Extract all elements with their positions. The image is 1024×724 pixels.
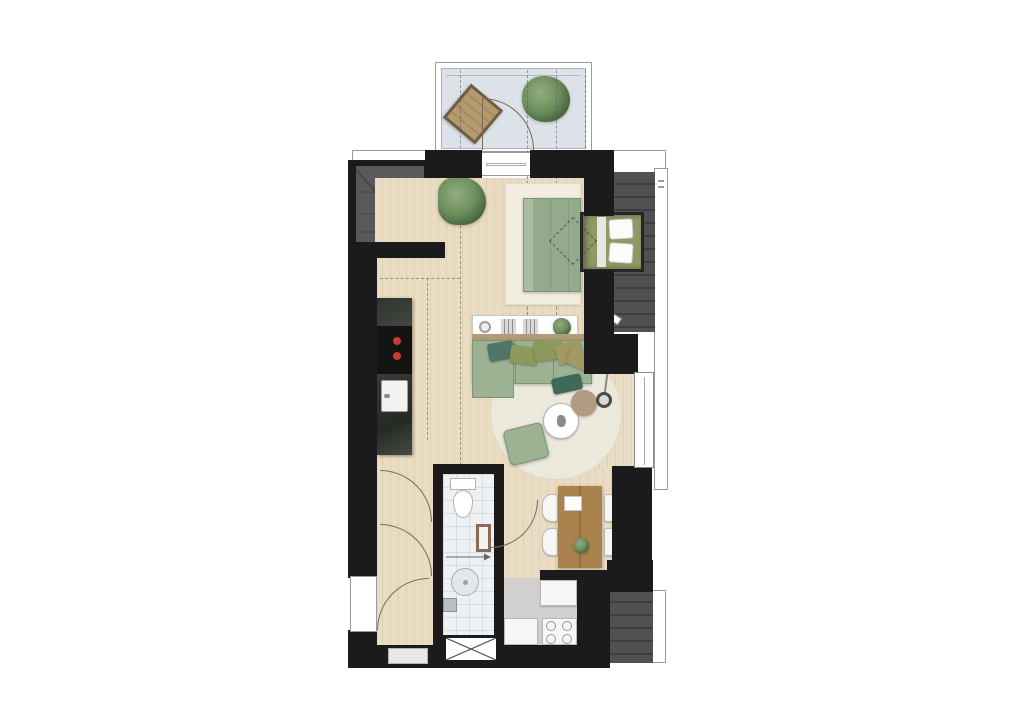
table-tray: [564, 496, 582, 511]
decor-books: [523, 319, 538, 335]
bottom-threshold: [388, 648, 428, 664]
roof-slope-bottom-right: [607, 590, 653, 663]
gutter-strip-bottom-right: [652, 590, 666, 663]
gutter-strip-right: [654, 168, 668, 490]
mirror-cabinet: [476, 524, 491, 552]
floor-plan-canvas: [0, 0, 1024, 724]
bed-pillow: [608, 218, 633, 239]
shaft-cross: [446, 638, 496, 660]
duct-shaft: [444, 636, 498, 662]
balcony-railing-line: [446, 75, 581, 76]
table-decor: [557, 415, 566, 427]
kitchen-sink: [381, 380, 408, 412]
table-plant: [574, 538, 589, 553]
entry-landing: [350, 576, 377, 632]
decor-books: [501, 319, 516, 335]
floor-drain: [443, 598, 457, 612]
drain-center: [463, 580, 468, 585]
side-pouf: [571, 390, 597, 416]
dining-chair: [542, 494, 558, 522]
height-contour-line: [380, 278, 460, 279]
kitchen-counter: [377, 298, 412, 455]
toilet-tank: [450, 478, 476, 490]
gutter-tick-marks: [658, 180, 664, 182]
height-contour-line: [460, 70, 461, 465]
bed-pillow: [608, 242, 633, 264]
drum-circle: [562, 621, 572, 631]
bed-seam: [550, 199, 551, 291]
utility-cabinet: [540, 580, 577, 606]
drum-circle: [546, 634, 556, 644]
gutter-tick-marks: [658, 186, 664, 188]
wall-right-upper: [584, 150, 614, 216]
living-room-plant: [438, 177, 486, 225]
shower-slope-arrow: [446, 552, 492, 562]
wall-under-stair: [348, 242, 445, 258]
sink-faucet: [384, 394, 390, 398]
drum-circle: [546, 621, 556, 631]
niche-sheet: [597, 217, 606, 267]
wall-right-mid-chunk: [584, 334, 638, 374]
drum-circle: [562, 634, 572, 644]
floor-lamp-base: [596, 392, 612, 408]
height-contour-line: [585, 70, 586, 148]
wall-top-left-of-door: [425, 150, 482, 178]
dining-chair: [542, 528, 558, 556]
sill-line: [486, 163, 526, 166]
wall-left-upper: [348, 244, 377, 578]
wall-right-below-niche: [584, 270, 614, 336]
wall-dining-utility: [540, 570, 620, 580]
height-contour-line: [427, 278, 428, 440]
burner-knob: [393, 352, 401, 360]
window-right: [634, 372, 654, 468]
burner-knob: [393, 337, 401, 345]
dining-table: [558, 486, 602, 568]
bed-foot-fold: [524, 199, 533, 291]
balcony-door-sill: [482, 152, 530, 176]
window-mullion: [644, 377, 645, 465]
balcony-plant: [522, 76, 570, 122]
cooktop: [377, 326, 412, 374]
utility-cabinet: [504, 618, 538, 645]
shower-drain: [451, 568, 479, 596]
washer-dryer: [542, 618, 577, 645]
decor-bowl: [479, 321, 491, 333]
